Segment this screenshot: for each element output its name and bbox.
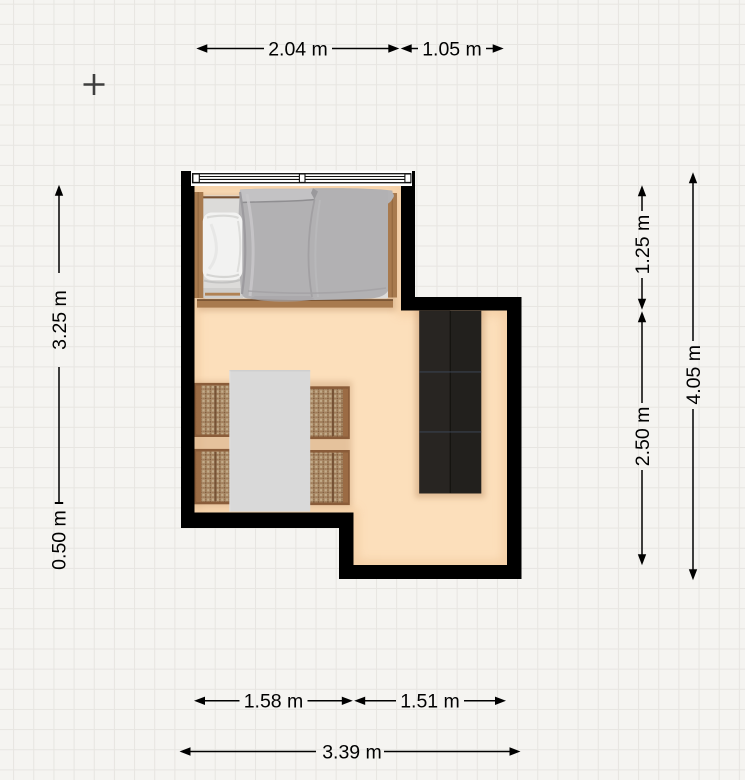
svg-text:1.25 m: 1.25 m — [632, 215, 654, 275]
svg-text:1.05 m: 1.05 m — [422, 38, 482, 60]
svg-text:1.51 m: 1.51 m — [400, 691, 460, 713]
svg-text:2.50 m: 2.50 m — [632, 407, 654, 467]
svg-text:4.05 m: 4.05 m — [683, 345, 705, 405]
svg-text:2.04 m: 2.04 m — [268, 38, 328, 60]
svg-text:1.58 m: 1.58 m — [244, 691, 304, 713]
svg-text:0.50 m: 0.50 m — [48, 510, 70, 570]
svg-text:3.25 m: 3.25 m — [49, 290, 71, 350]
svg-text:3.39 m: 3.39 m — [322, 741, 382, 763]
